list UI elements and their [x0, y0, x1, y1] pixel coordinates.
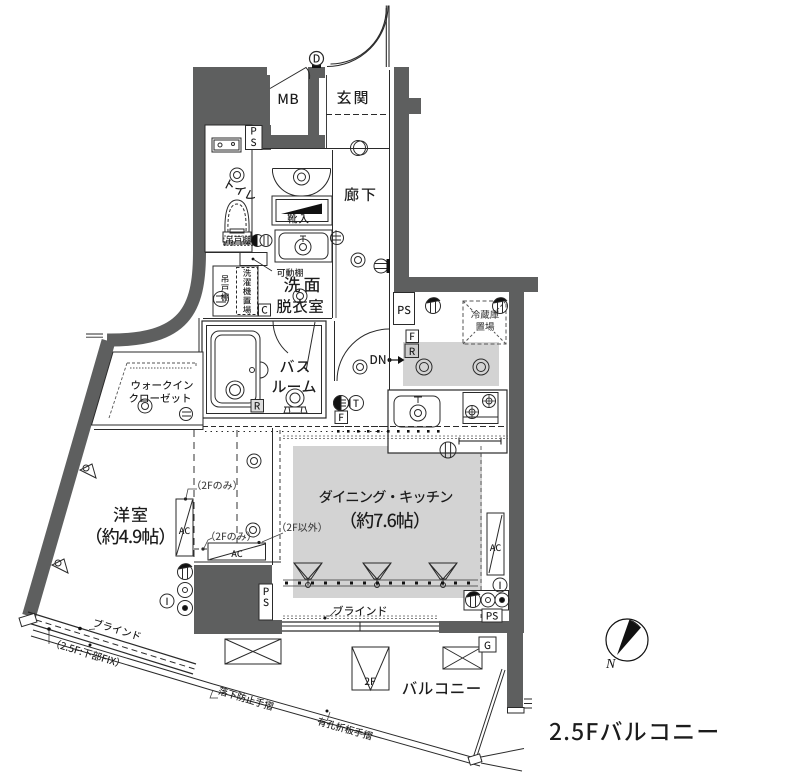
svg-text:N: N: [605, 657, 616, 672]
